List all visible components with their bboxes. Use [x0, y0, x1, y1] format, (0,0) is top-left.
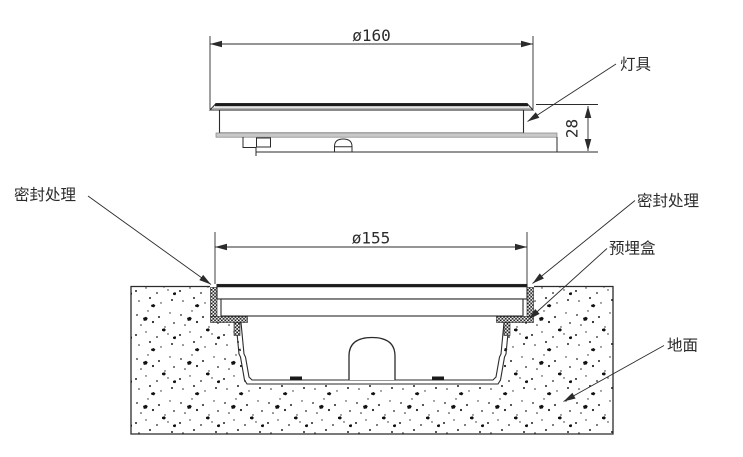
luminaire-flange	[210, 104, 533, 111]
luminaire-body	[216, 110, 598, 156]
cable-gland	[335, 139, 353, 152]
technical-drawing-canvas: ø160 28 灯具	[0, 0, 743, 457]
callout-seal-right: 密封处理	[533, 192, 700, 284]
recessed-luminaire	[217, 285, 527, 317]
dimension-diameter-155: ø155	[215, 229, 527, 285]
dimension-height-28: 28	[536, 105, 598, 152]
dim-diameter-155-label: ø155	[352, 229, 391, 248]
callout-seal-left: 密封处理	[14, 186, 211, 285]
luminaire-base-plate	[216, 133, 557, 137]
callout-lamp-label: 灯具	[620, 56, 651, 74]
callout-ground-label: 地面	[667, 337, 698, 355]
callout-lamp: 灯具	[528, 56, 652, 122]
dimension-diameter-160: ø160	[210, 26, 533, 109]
side-view: ø160 28 灯具	[210, 26, 651, 156]
cable-entry-dome	[349, 338, 395, 381]
section-view: ø155 密封处理 密封处理 预埋盒 地面	[14, 186, 699, 434]
callout-seal-right-label: 密封处理	[637, 192, 699, 210]
mounting-clip	[243, 137, 271, 156]
inground-luminaire-installation-drawing: ø160 28 灯具	[0, 0, 743, 457]
dim-height-28-label: 28	[563, 119, 582, 138]
callout-seal-left-label: 密封处理	[14, 186, 76, 204]
dim-diameter-160-label: ø160	[352, 26, 391, 45]
callout-embedded-box-label: 预埋盒	[609, 240, 656, 258]
